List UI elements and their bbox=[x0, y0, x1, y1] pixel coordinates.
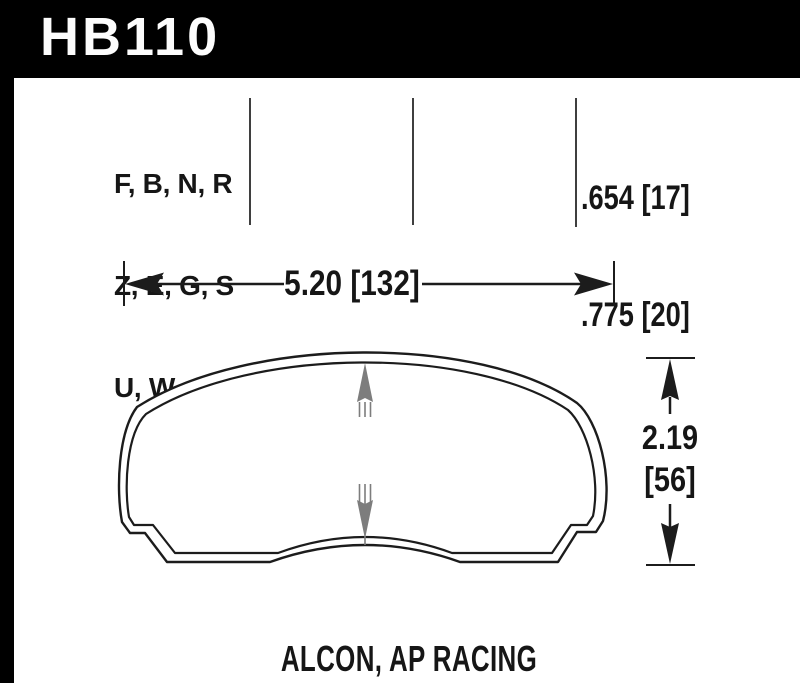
pad-height-dimension-label: 2.19 [56] bbox=[611, 417, 730, 501]
application-label: ALCON, AP RACING bbox=[125, 638, 694, 680]
left-border-stripe bbox=[0, 0, 14, 683]
arrow-down-icon bbox=[661, 523, 679, 564]
brake-pad-spec-diagram: HB110 F, B, N, R Z, E, G, S U, W .654 [1… bbox=[0, 0, 800, 691]
compound-codes-line: U, W bbox=[114, 371, 234, 405]
center-height-dimension-label: 1.98 [50] bbox=[309, 418, 421, 484]
center-height-value-mm: [50] bbox=[309, 451, 421, 484]
part-number-text: HB110 bbox=[40, 6, 220, 68]
width-dimension-label: 5.20 [132] bbox=[233, 264, 471, 304]
column-dividers bbox=[250, 98, 576, 227]
center-height-value-in: 1.98 bbox=[309, 418, 421, 451]
arrow-up-icon bbox=[357, 363, 373, 402]
part-number: HB110 bbox=[40, 0, 220, 74]
compound-codes-line: Z, E, G, S bbox=[114, 269, 234, 303]
pad-thickness-value: .775 [20] bbox=[581, 296, 690, 335]
pad-thickness-value: .654 [17] bbox=[581, 179, 690, 218]
compound-codes: F, B, N, R Z, E, G, S U, W bbox=[114, 99, 234, 473]
pad-thickness-values: .654 [17] .775 [20] bbox=[581, 101, 690, 413]
compound-codes-line: F, B, N, R bbox=[114, 167, 234, 201]
pad-height-value-in: 2.19 bbox=[611, 417, 730, 459]
pad-height-value-mm: [56] bbox=[611, 459, 730, 501]
arrow-down-icon bbox=[357, 500, 373, 539]
